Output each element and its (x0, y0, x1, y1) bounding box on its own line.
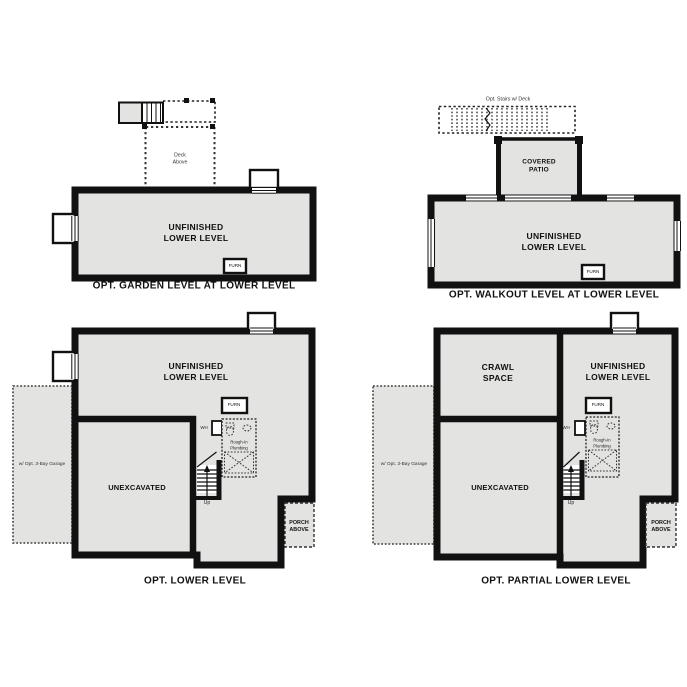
lower-window-well-left (53, 352, 79, 381)
walkout-patio-label: COVERED PATIO (522, 159, 556, 176)
lower-furnace-label: FURN (228, 402, 241, 408)
walkout-window-left (428, 219, 436, 267)
partial-garage-label: w/ Opt. 3-Bay Garage (381, 462, 427, 468)
walkout-deck-outline (439, 107, 575, 134)
partial-furnace-label: FURN (592, 402, 605, 408)
walkout-caption: OPT. WALKOUT LEVEL AT LOWER LEVEL (449, 289, 659, 302)
walkout-furnace-label: FURN (587, 269, 600, 275)
lower-water-heater (212, 421, 222, 435)
partial-up-label: Up (568, 500, 574, 507)
garden-window-well-top (250, 170, 278, 194)
walkout-room-label: UNFINISHED LOWER LEVEL (522, 231, 587, 253)
lower-up-label: Up (204, 500, 210, 507)
plan-walkout (428, 107, 682, 286)
garden-furnace-label: FURN (229, 263, 242, 269)
partial-room-label: UNFINISHED LOWER LEVEL (586, 361, 651, 383)
walkout-deck-treads (452, 108, 547, 131)
partial-plumbing-label: Rough-In Plumbing (593, 437, 610, 448)
partial-water-heater-label: WH (562, 425, 569, 431)
partial-caption: OPT. PARTIAL LOWER LEVEL (481, 575, 631, 588)
garden-caption: OPT. GARDEN LEVEL AT LOWER LEVEL (93, 280, 296, 293)
plan-garden (53, 98, 313, 278)
partial-porch-label: PORCH ABOVE (651, 520, 670, 534)
garden-deck-label: Deck Above (173, 152, 188, 166)
plan-lower (13, 313, 314, 565)
garden-deck-stairs (119, 103, 163, 124)
walkout-window-right (674, 221, 682, 251)
lower-unexcavated-label: UNEXCAVATED (108, 483, 166, 493)
lower-garage-label: w/ Opt. 3-Bay Garage (19, 462, 65, 468)
lower-porch-label: PORCH ABOVE (289, 520, 308, 534)
garden-window-well-left (53, 214, 79, 243)
floorplan-sheet: Deck Above UNFINISHED LOWER LEVEL FURN O… (0, 0, 687, 687)
walkout-patio-door (505, 195, 571, 203)
garden-room-label: UNFINISHED LOWER LEVEL (164, 222, 229, 244)
partial-crawl-label: CRAWL SPACE (482, 362, 515, 384)
lower-water-heater-label: WH (200, 425, 207, 431)
lower-room-label: UNFINISHED LOWER LEVEL (164, 361, 229, 383)
partial-water-heater (575, 421, 585, 435)
walkout-window-top-right (607, 195, 634, 203)
lower-caption: OPT. LOWER LEVEL (144, 575, 246, 588)
partial-unexcavated-label: UNEXCAVATED (471, 483, 529, 493)
plan-partial (373, 313, 676, 565)
partial-window-well-top (611, 313, 638, 335)
lower-window-well-top (248, 313, 275, 335)
walkout-opt-stairs-label: Opt. Stairs w/ Deck (486, 97, 530, 104)
lower-plumbing-label: Rough-In Plumbing (230, 439, 247, 450)
walkout-window-top-left (466, 195, 497, 203)
